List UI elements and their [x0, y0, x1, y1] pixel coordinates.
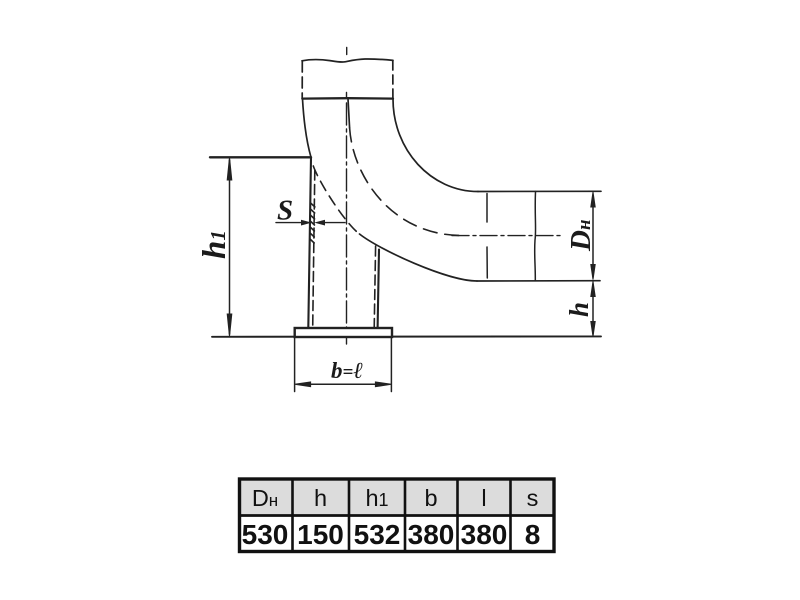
- svg-text:l: l: [481, 485, 486, 511]
- svg-text:s: s: [527, 485, 539, 511]
- svg-text:h: h: [564, 302, 594, 317]
- svg-text:380: 380: [408, 519, 455, 550]
- svg-text:8: 8: [525, 519, 541, 550]
- svg-text:530: 530: [242, 519, 289, 550]
- svg-text:532: 532: [354, 519, 401, 550]
- svg-text:b=ℓ: b=ℓ: [331, 358, 363, 383]
- svg-text:380: 380: [461, 519, 508, 550]
- svg-text:h: h: [314, 485, 327, 511]
- svg-text:S: S: [277, 195, 293, 227]
- svg-text:150: 150: [297, 519, 344, 550]
- svg-text:b: b: [424, 485, 437, 511]
